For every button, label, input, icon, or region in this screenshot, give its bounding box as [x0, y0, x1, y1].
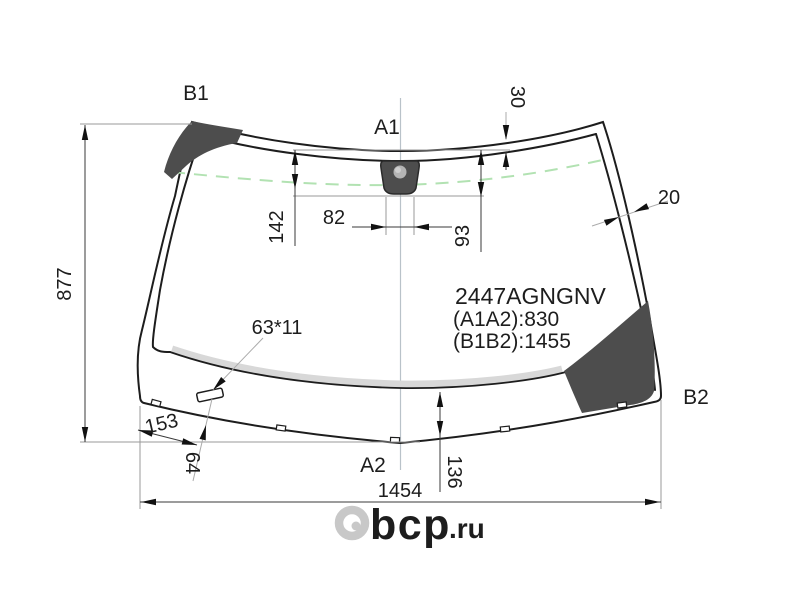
dim-top-30: 30 [506, 86, 528, 108]
part-number: 2447AGNGNV [455, 283, 607, 309]
part-info-block: 2447AGNGNV (A1A2):830 (B1B2):1455 [453, 283, 607, 353]
dim-shade-142: 142 [266, 210, 288, 243]
extension-lines [80, 124, 661, 509]
watermark-suffix: .ru [449, 513, 485, 544]
part-dim-a1a2: (A1A2):830 [453, 308, 559, 331]
label-a2: A2 [360, 454, 386, 477]
part-dim-b1b2: (B1B2):1455 [453, 330, 571, 353]
dim-slot-64: 64 [181, 452, 203, 474]
watermark-logo-dot [352, 522, 361, 531]
dim-left-153: 153 [143, 410, 180, 439]
dim-bottom-136: 136 [443, 455, 465, 488]
sensor-bracket-highlight [395, 167, 401, 173]
windshield-diagram: B1 A1 B2 A2 877 142 82 93 30 20 63*11 15… [0, 0, 800, 600]
b1-corner-dark-band [164, 121, 243, 179]
mounting-slot [196, 388, 223, 402]
bottom-frit-band [172, 349, 562, 384]
windshield-diagram-page: B1 A1 B2 A2 877 142 82 93 30 20 63*11 15… [0, 0, 800, 600]
label-a1: A1 [374, 116, 400, 139]
edge-tab [276, 425, 286, 431]
dim-right-93: 93 [452, 225, 474, 247]
dim-height-877: 877 [54, 267, 76, 300]
label-b2: B2 [683, 386, 709, 409]
watermark: bcp .ru [339, 501, 485, 549]
edge-tab [500, 426, 509, 432]
watermark-text: bcp [370, 501, 451, 549]
dim-width-1454: 1454 [378, 480, 423, 502]
b2-corner-dark-band [564, 301, 655, 413]
watermark-logo-icon [339, 510, 365, 536]
dim-slot-63x11: 63*11 [252, 317, 303, 339]
dimension-arrows [82, 125, 660, 505]
label-b1: B1 [183, 82, 209, 105]
dim-sensor-82: 82 [323, 207, 345, 229]
edge-tab [617, 402, 627, 408]
dim-edge-20: 20 [658, 187, 680, 209]
